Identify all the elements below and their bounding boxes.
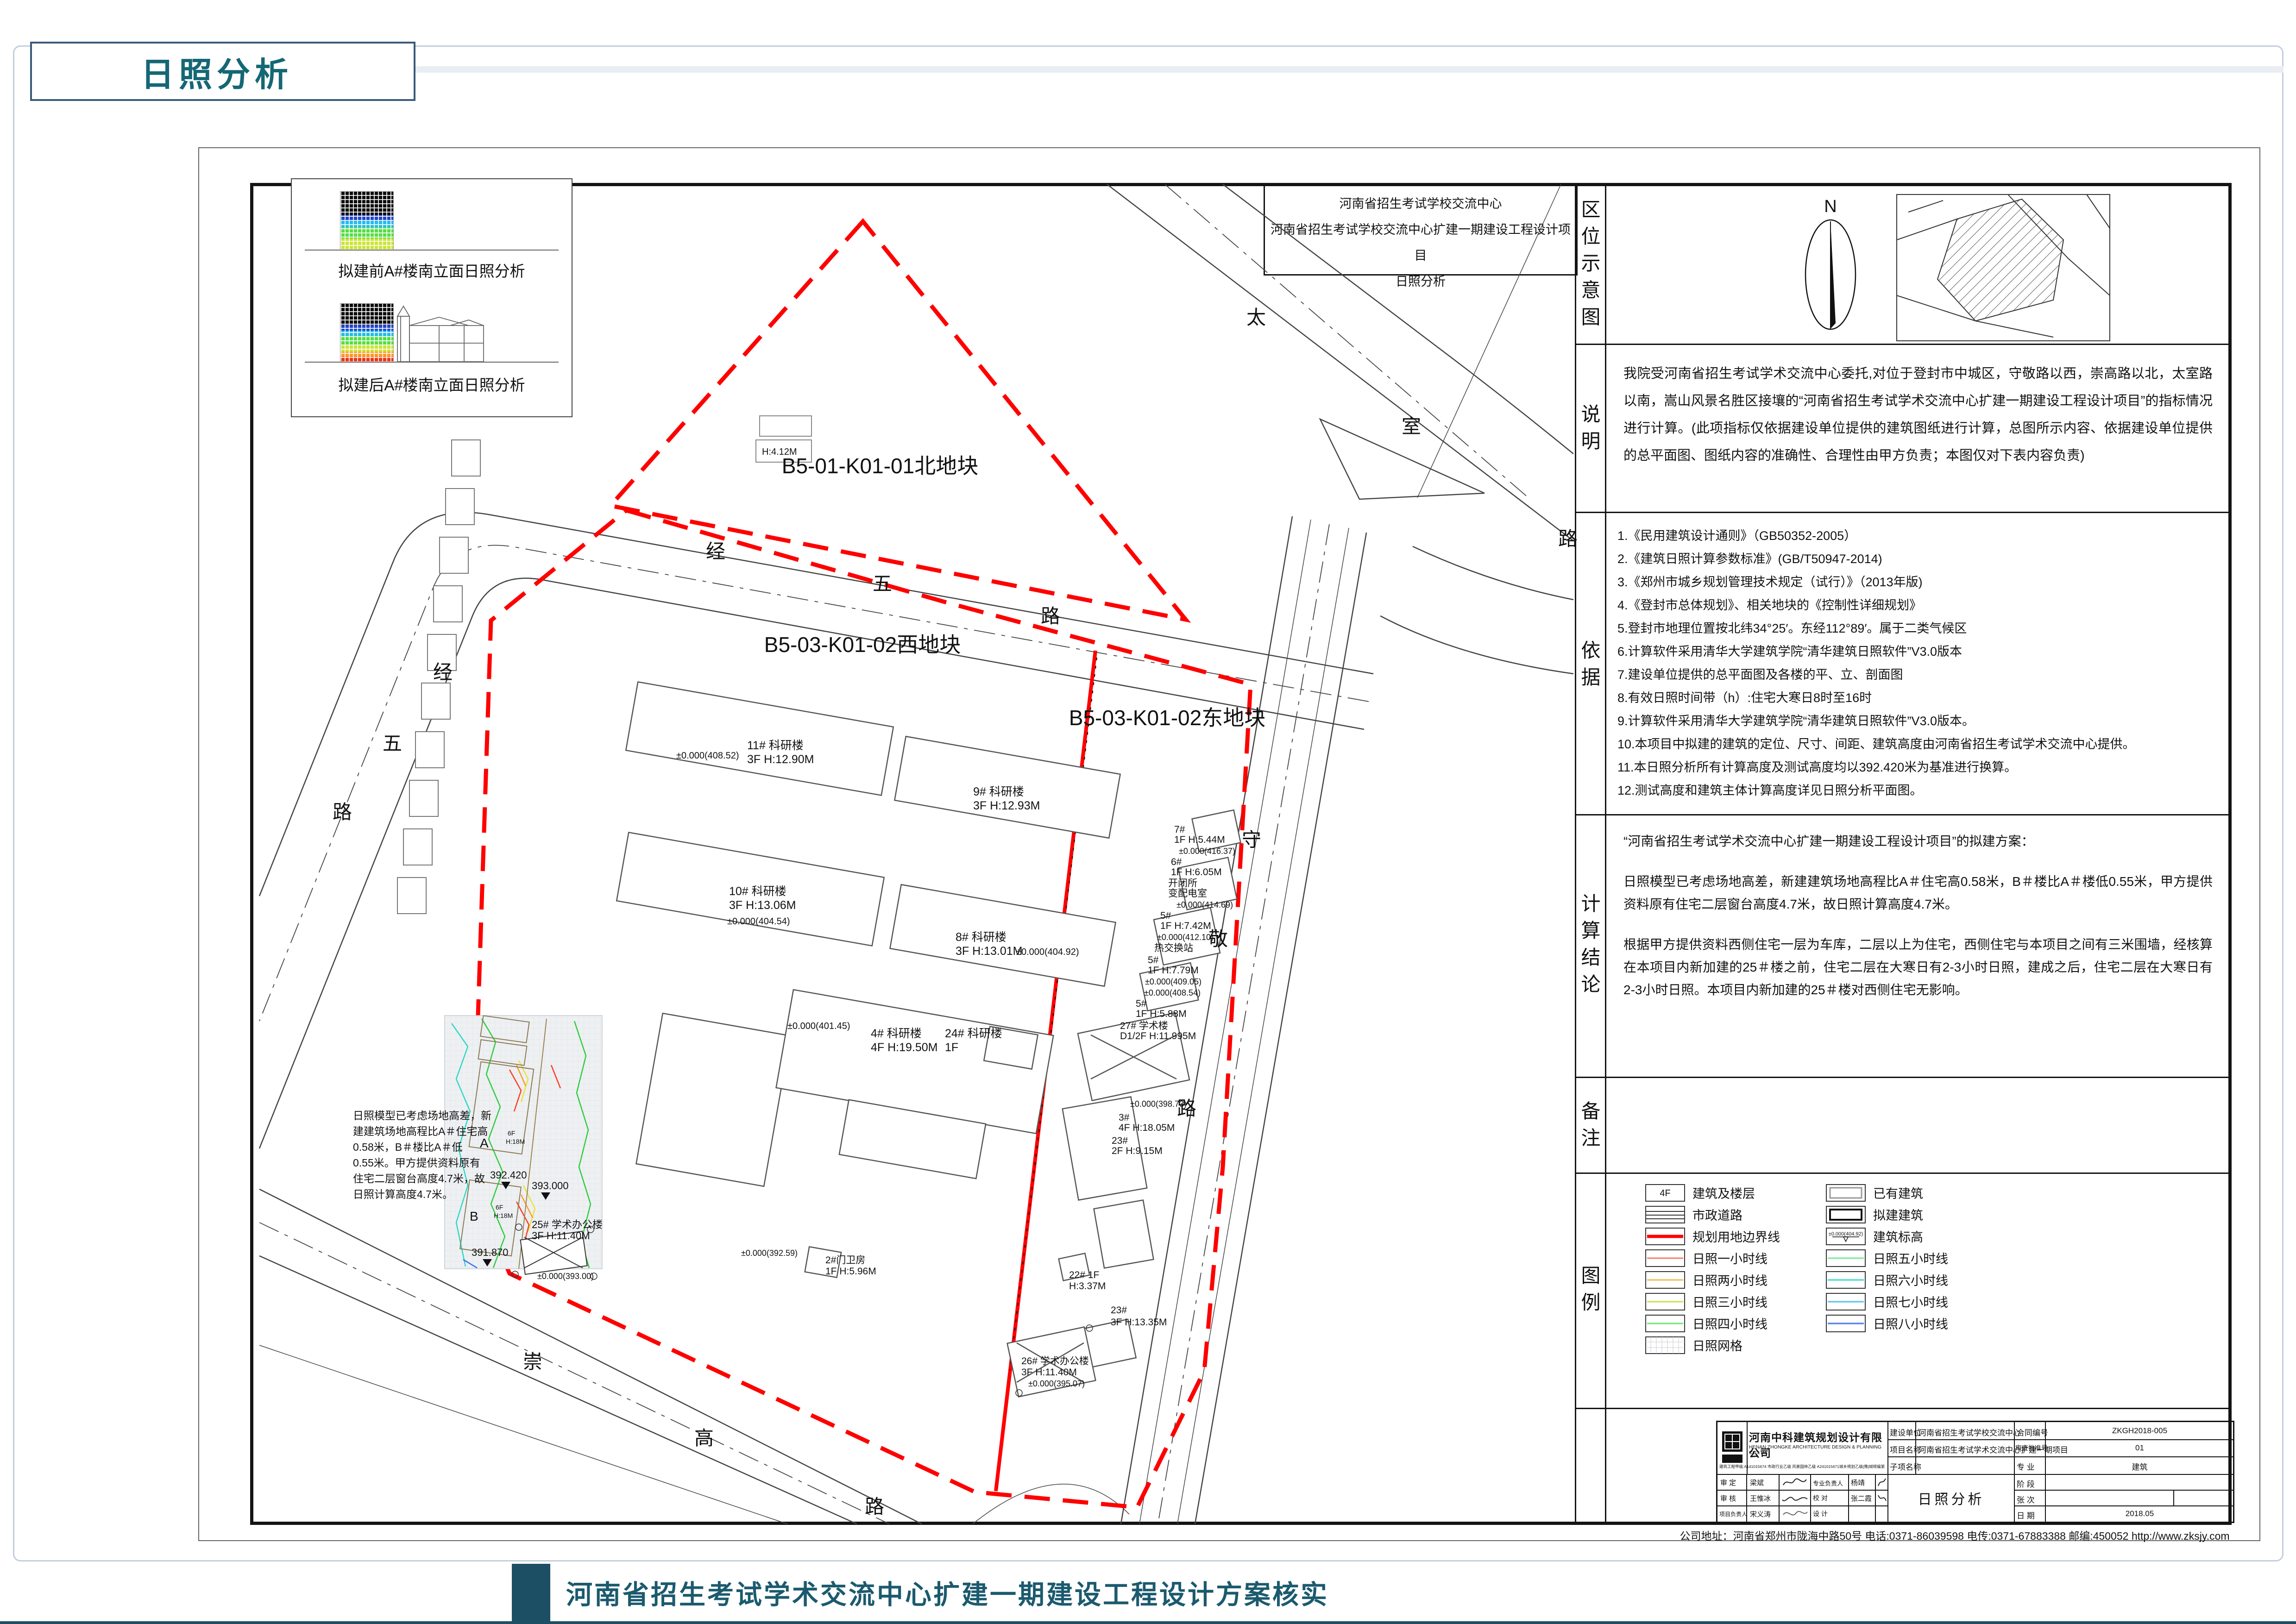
bldg4-spec: 4F H:19.50M [871,1041,938,1054]
caption-before: 拟建前A#楼南立面日照分析 [292,259,572,281]
elevation-391-870: 391.870 [472,1247,509,1258]
bldg24-spec: 1F [945,1041,958,1054]
titleblock: 河南中科建筑规划设计有限公司 HENAN ZHONGKE ARCHITECTUR… [1716,1421,2234,1523]
date-value: 2018.05 [2048,1509,2231,1518]
major-value: 建筑 [2048,1461,2231,1472]
bldg10-elev: ±0.000(404.54) [727,916,790,927]
bldg6-spec: 1F H:6.05M [1171,867,1222,878]
ground-line-before [305,250,559,251]
zone-building-b-floors: 6F [496,1204,503,1211]
signature-lead [1877,1476,1887,1489]
bldg4-elev: ±0.000(401.45) [787,1021,850,1031]
review-label: 审查批准号 [2015,1443,2048,1453]
bldg10-spec: 3F H:13.06M [729,899,796,912]
signature-approve [1780,1476,1809,1489]
parcel-label-north: B5-01-K01-01北地块 [782,454,978,478]
bldg5c-spec: 1F H:5.88M [1136,1009,1187,1019]
road-jingwu-w-char2: 五 [383,733,402,754]
bldg9-name: 9# 科研楼 [973,785,1024,798]
drawing-page: 日照分析 河南省招生考试学校交流中心 河南省招生考试学校交流中心扩建一期建设工程… [0,0,2296,1624]
bldg23b-spec: 3F H:13.35M [1111,1317,1167,1328]
lead-name: 杨靖 [1851,1478,1865,1487]
building-elevation-outline [395,299,487,362]
date-label: 日 期 [2017,1509,2035,1521]
bldg23-spec: 2F H:9.15M [1112,1146,1163,1156]
review-value: 01 [2048,1443,2231,1453]
check-name: 王惟冰 [1750,1493,1771,1503]
footer-bottom-strip [0,1621,2296,1624]
planning-boundaries [472,221,1251,1507]
road-taishi-center [1165,184,1529,498]
road-jingwu-w-char3: 路 [333,801,352,823]
road-chonggao-char3: 路 [865,1496,884,1517]
bldg26-name: 26# 学术办公楼 [1021,1356,1089,1367]
footer-title: 河南省招生考试学术交流中心扩建一期建设工程设计方案核实 [566,1574,1329,1611]
facade-analysis-inset: 拟建前A#楼南立面日照分析 拟建后A#楼南立面日照分析 [291,178,572,417]
zone-annotation-line: 建建筑场地高程比A＃住宅高 [353,1123,506,1139]
road-taishi-char3: 路 [1558,528,1578,550]
road-chonggao-char1: 崇 [523,1351,542,1373]
owner-value: 河南省招生考试学校交流中心 [1919,1426,2021,1438]
gatehouse-spec: 1F H:5.96M [825,1266,876,1277]
bldg4-name: 4# 科研楼 [871,1027,922,1040]
bldg5a-spec: 1F H:7.42M [1160,921,1211,931]
bldg8-name: 8# 科研楼 [956,931,1006,944]
pm-name: 宋义涛 [1750,1509,1771,1519]
road-taishi-edge1 [1107,184,1573,541]
bldg24-name: 24# 科研楼 [945,1027,1002,1040]
bldg6-use1: 开闭所 [1168,878,1197,889]
road-jingwu-n-char3: 路 [1041,605,1060,627]
bldg26-elev: ±0.000(395.07) [1028,1379,1085,1388]
zone-annotation-line: 住宅二层窗台高度4.7米，故 [353,1171,506,1186]
bldg27-name: 27# 学术楼 [1120,1021,1168,1031]
zone-building-a-floors: 6F [508,1129,515,1137]
proof-name: 张二霞 [1851,1493,1872,1503]
bldg5b-elev: ±0.000(409.05) [1145,977,1201,986]
svg-text:±0.000(393.00): ±0.000(393.00) [537,1272,594,1281]
road-shoujing-center [1158,524,1329,1524]
contract-value: ZKGH2018-005 [2048,1426,2231,1436]
road-shoujing-char1: 守 [1242,829,1261,851]
approve-label: 审 定 [1720,1478,1736,1487]
bldg5b-spec: 1F H:7.79M [1148,965,1199,976]
company-logo [1721,1430,1743,1466]
zone-building-b-label: B [470,1209,478,1223]
lead-label: 专业负责人 [1813,1479,1843,1487]
bldg5c-elev: ±0.000(408.54) [1144,988,1201,997]
road-chonggao-bottom [259,1256,857,1524]
svg-text:3F H:11.40M: 3F H:11.40M [532,1230,590,1242]
footer-accent-block [512,1564,550,1621]
bldg7-spec: 1F H:5.44M [1174,834,1225,845]
bldg11-spec: 3F H:12.90M [747,753,814,766]
zone-annotation: 日照模型已考虑场地高差，新 建建筑场地高程比A＃住宅高 0.58米，B＃楼比A＃… [353,1108,506,1202]
zone-annotation-line: 日照模型已考虑场地高差，新 [353,1108,506,1123]
ground-line-after [305,362,559,363]
bldg23-name: 23# [1112,1135,1128,1146]
major-label: 专 业 [2017,1461,2035,1472]
signature-proof [1877,1492,1887,1505]
contract-label: 合同编号 [2017,1426,2048,1438]
road-connector-ne2 [1380,616,1573,674]
bldg27-elev: ±0.000(398.73) [1130,1099,1187,1109]
elevation-393-000: 393.000 [532,1180,569,1191]
zone-building-b-height: H:18M [494,1212,513,1219]
zone-annotation-line: 0.58米，B＃楼比A＃低 [353,1139,506,1155]
bldg3-name: 3# [1119,1112,1130,1123]
road-taishi-char2: 室 [1402,415,1421,437]
bldg11-name: 11# 科研楼 [747,739,804,752]
company-name-en: HENAN ZHONGKE ARCHITECTURE DESIGN & PLAN… [1749,1444,1886,1455]
gatehouse-name: 2#门卫房 [825,1255,865,1266]
road-connector-ne1 [1413,546,1573,600]
bldg5a-elev: ±0.000(412.10) [1157,933,1214,942]
bldg26-spec: 3F H:11.40M [1021,1367,1077,1378]
bldg11-elev: ±0.000(408.52) [676,751,739,761]
subproject-label: 子项名称 [1890,1461,1921,1472]
east-building-labels: 7# 1F H:5.44M ±0.000(416.37) 6# 1F H:6.0… [1112,824,1235,1156]
zone-annotation-line: 0.55米。甲方提供资料原有 [353,1155,506,1171]
drawing-title: 日照分析 [1888,1474,2014,1522]
road-taishi-char1: 太 [1246,307,1266,328]
bldg7-name: 7# [1174,824,1185,835]
bldg9-spec: 3F H:12.93M [973,799,1040,812]
caption-after: 拟建后A#楼南立面日照分析 [292,373,572,395]
stage-label: 阶 段 [2017,1478,2035,1489]
road-jingwu-n-char1: 经 [706,540,725,562]
sheetno-label: 张 次 [2017,1493,2035,1505]
owner-label: 建设单位 [1890,1426,1921,1438]
bldg8-elev: ±0.000(404.92) [1016,947,1079,957]
design-label: 设 计 [1813,1509,1828,1518]
bldg6-elev: ±0.000(414.69) [1176,900,1233,909]
road-jingwu-w-char1: 经 [433,661,453,683]
zone-building-a-height: H:18M [506,1138,525,1145]
bldg23b-name: 23# [1111,1305,1127,1316]
bldg7-elev: ±0.000(416.37) [1179,846,1235,856]
pm-label: 项目负责人 [1719,1510,1747,1518]
parcel-labels: B5-01-K01-01北地块 B5-03-K01-02西地块 B5-03-K0… [764,454,1265,730]
bldg22-spec: H:3.37M [1069,1281,1106,1292]
company-cert: 建筑工程甲级:A141015674 市政行业乙级 风景园林乙级 A2410156… [1719,1464,1886,1469]
road-shoujing-east [1195,533,1366,1524]
parcel-label-east: B5-03-K01-02东地块 [1069,706,1265,730]
bldg6-name: 6# [1171,857,1182,867]
project-label: 项目名称 [1890,1443,1921,1455]
road-chonggao-char2: 高 [694,1427,714,1449]
bldg5c-name: 5# [1136,998,1147,1009]
road-jingwu-n-char2: 五 [873,573,892,595]
gatehouse-elev: ±0.000(392.59) [741,1248,798,1258]
bldg10-name: 10# 科研楼 [729,885,786,898]
north-parcel-boundary [610,221,1186,620]
parcel-label-west: B5-03-K01-02西地块 [764,633,961,657]
bldg6-use2: 变配电室 [1168,888,1207,899]
road-shoujing-lane2 [1177,528,1349,1524]
check-label: 审 核 [1720,1493,1736,1503]
heatmap-before [340,191,394,251]
road-taishi-edge2 [1223,184,1573,454]
signature-pm [1780,1507,1809,1520]
bldg5a-use: 热交换站 [1154,943,1193,953]
bldg3-spec: 4F H:18.05M [1119,1122,1175,1133]
proof-label: 校 对 [1813,1493,1828,1503]
zone-annotation-line: 日照计算高度4.7米。 [353,1186,506,1202]
bldg5a-name: 5# [1160,910,1171,921]
bldg5b-name: 5# [1148,955,1159,966]
bldg8-spec: 3F H:13.01M [956,945,1023,958]
svg-text:25# 学术办公楼: 25# 学术办公楼 [532,1219,603,1230]
approve-name: 梁斌 [1750,1478,1764,1487]
bldg22-name: 22# 1F [1069,1270,1099,1280]
bldg27-spec: D1/2F H:11.995M [1120,1031,1196,1041]
signature-check [1780,1492,1809,1505]
heatmap-after [340,303,394,363]
company-address: 公司地址：河南省郑州市陇海中路50号 电话:0371-86039598 电传:0… [1649,1527,2260,1543]
road-shoujing-north [1417,184,1561,498]
